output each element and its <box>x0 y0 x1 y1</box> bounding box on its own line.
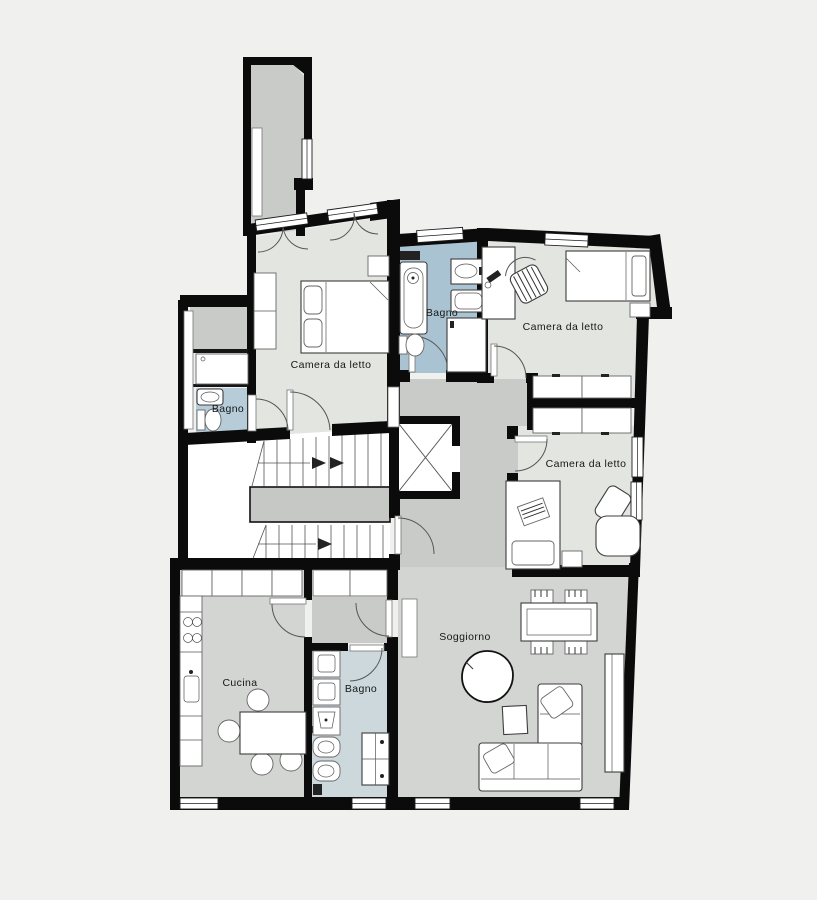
single-bed <box>506 481 560 569</box>
side-table <box>502 705 527 734</box>
shower <box>362 733 389 785</box>
window <box>631 482 642 520</box>
room-label-bedroom-3: Camera da letto <box>546 458 627 470</box>
utility-box <box>313 784 322 795</box>
room-label-bedroom-2: Camera da letto <box>523 321 604 333</box>
window <box>415 798 450 809</box>
single-bed <box>566 251 650 301</box>
pouf <box>462 651 513 702</box>
lightwell-strip <box>184 311 193 429</box>
room-label-kitchen: Cucina <box>222 677 257 689</box>
toilet <box>313 737 340 757</box>
toilet <box>399 334 424 356</box>
floor-storage-left <box>190 302 248 349</box>
dining-chair <box>531 640 553 654</box>
window <box>352 798 386 809</box>
room-label-living: Soggiorno <box>439 631 490 643</box>
elevator-door <box>452 446 460 472</box>
window <box>417 227 464 242</box>
bidet <box>313 761 340 781</box>
washer <box>313 679 340 705</box>
bathtub <box>400 262 427 334</box>
desk <box>482 247 515 319</box>
tall-cabinet <box>605 654 624 772</box>
wardrobe <box>254 273 276 349</box>
elevator <box>391 416 460 499</box>
washer <box>313 651 340 677</box>
room-label-bathroom-small: Bagno <box>212 403 244 415</box>
nightstand <box>630 303 650 317</box>
door-upper-apartment <box>388 387 399 427</box>
storage-cabinet <box>196 354 248 384</box>
room-label-bathroom-lower: Bagno <box>345 683 377 695</box>
shower-cabinet <box>447 318 486 372</box>
nightstand <box>368 256 389 276</box>
sink <box>451 259 486 284</box>
window <box>580 798 614 809</box>
sink <box>313 707 340 735</box>
dining-chair <box>565 590 587 604</box>
window <box>302 139 312 179</box>
kitchen-counter <box>180 596 202 766</box>
window <box>545 233 589 247</box>
floor-plan-canvas: Camera da letto Bagno Camera da letto Ca… <box>0 0 817 900</box>
open-door-leaf <box>402 599 417 657</box>
shelf <box>400 251 420 260</box>
window <box>632 437 643 477</box>
kitchen-closet-row <box>182 570 387 596</box>
floor-hall-lower <box>312 597 388 643</box>
dining-chair <box>565 640 587 654</box>
dining-chair <box>531 590 553 604</box>
nightstand <box>562 551 582 567</box>
double-bed <box>301 281 389 353</box>
shaft-door-leaf <box>252 128 262 216</box>
stair-landing <box>250 487 390 522</box>
room-label-bedroom-1: Camera da letto <box>291 359 372 371</box>
floor-plan: Camera da letto Bagno Camera da letto Ca… <box>0 0 817 900</box>
room-label-bathroom-main: Bagno <box>426 307 458 319</box>
window <box>180 798 218 809</box>
